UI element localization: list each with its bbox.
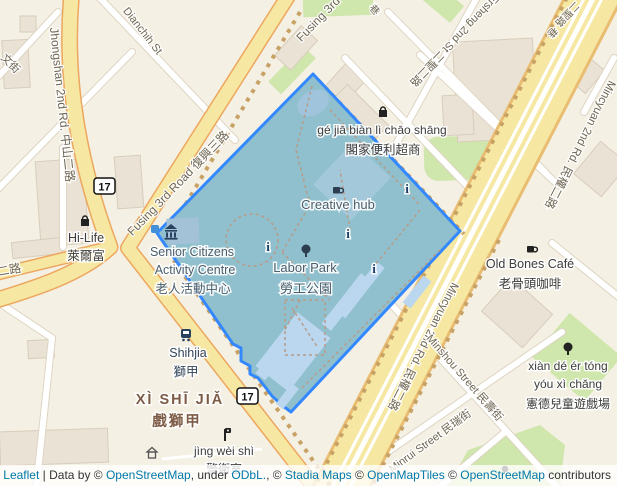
leaflet-link[interactable]: Leaflet <box>3 468 39 482</box>
label-senior-zh: 老人活動中心 <box>155 281 231 296</box>
svg-text:17: 17 <box>241 392 253 404</box>
label-xiande-2: yóu xì chǎng <box>534 377 602 391</box>
label-hilife-en: Hi-Life <box>68 231 104 245</box>
train-station-icon <box>181 329 191 341</box>
svg-text:17: 17 <box>98 182 110 194</box>
label-shihjia-zh: 獅甲 <box>173 365 198 379</box>
label-labor-park-en: Labor Park <box>273 260 337 275</box>
info-icon: i <box>372 261 376 276</box>
label-gejia-pinyin: gé jiā biàn lì chāo shāng <box>317 123 446 137</box>
house-icon <box>147 448 157 459</box>
info-icon: i <box>266 239 270 254</box>
attribution-bar: Leaflet | Data by © OpenStreetMap, under… <box>0 465 617 486</box>
shop-bag-icon <box>379 107 387 117</box>
attribution-text: | Data by © <box>39 468 106 482</box>
osm-contributors-link[interactable]: OpenStreetMap <box>460 468 545 482</box>
label-senior-2: Activity Centre <box>155 263 236 277</box>
label-oldbones-zh: 老骨頭咖啡 <box>499 276 562 291</box>
odbl-link[interactable]: ODbL. <box>231 468 266 482</box>
label-xiande-1: xiàn dé ér tóng <box>528 359 607 373</box>
label-xishijia-zh: 戲獅甲 <box>152 412 202 430</box>
stadia-link[interactable]: Stadia Maps <box>285 468 352 482</box>
map-tiles: i i i i 17 17 Jhongshan 2nd Rd. 中山二路 Dia… <box>0 0 617 486</box>
label-xiande-zh: 憲德兒童遊戲場 <box>526 396 610 411</box>
osm-link[interactable]: OpenStreetMap <box>106 468 191 482</box>
label-labor-park-zh: 勞工公園 <box>280 281 332 296</box>
blue-amenity-icon <box>151 225 159 233</box>
label-oldbones-en: Old Bones Café <box>486 257 574 271</box>
label-creative-hub: Creative hub <box>301 197 375 212</box>
traffic-signal-icon <box>224 428 231 441</box>
map-canvas[interactable]: i i i i 17 17 Jhongshan 2nd Rd. 中山二路 Dia… <box>0 0 617 486</box>
coffee-cup-icon <box>527 246 537 253</box>
road-label-ersheng-west: 二聖二路 <box>0 260 22 283</box>
label-jingweishi-pinyin: jìng wèi shì <box>193 444 254 458</box>
label-xishijia-pinyin: XÌ SHĪ JIǍ <box>136 390 225 408</box>
label-senior-1: Senior Citizens <box>150 245 234 259</box>
route-shield-17: 17 <box>94 178 115 194</box>
openmaptiles-link[interactable]: OpenMapTiles <box>367 468 445 482</box>
label-hilife-zh: 萊爾富 <box>67 248 105 263</box>
label-shihjia-en: Shihjia <box>169 346 207 360</box>
info-icon: i <box>405 181 409 196</box>
info-icon: i <box>346 226 350 241</box>
label-gejia-zh: 閣家便利超商 <box>345 142 420 157</box>
route-shield-17: 17 <box>237 388 258 404</box>
